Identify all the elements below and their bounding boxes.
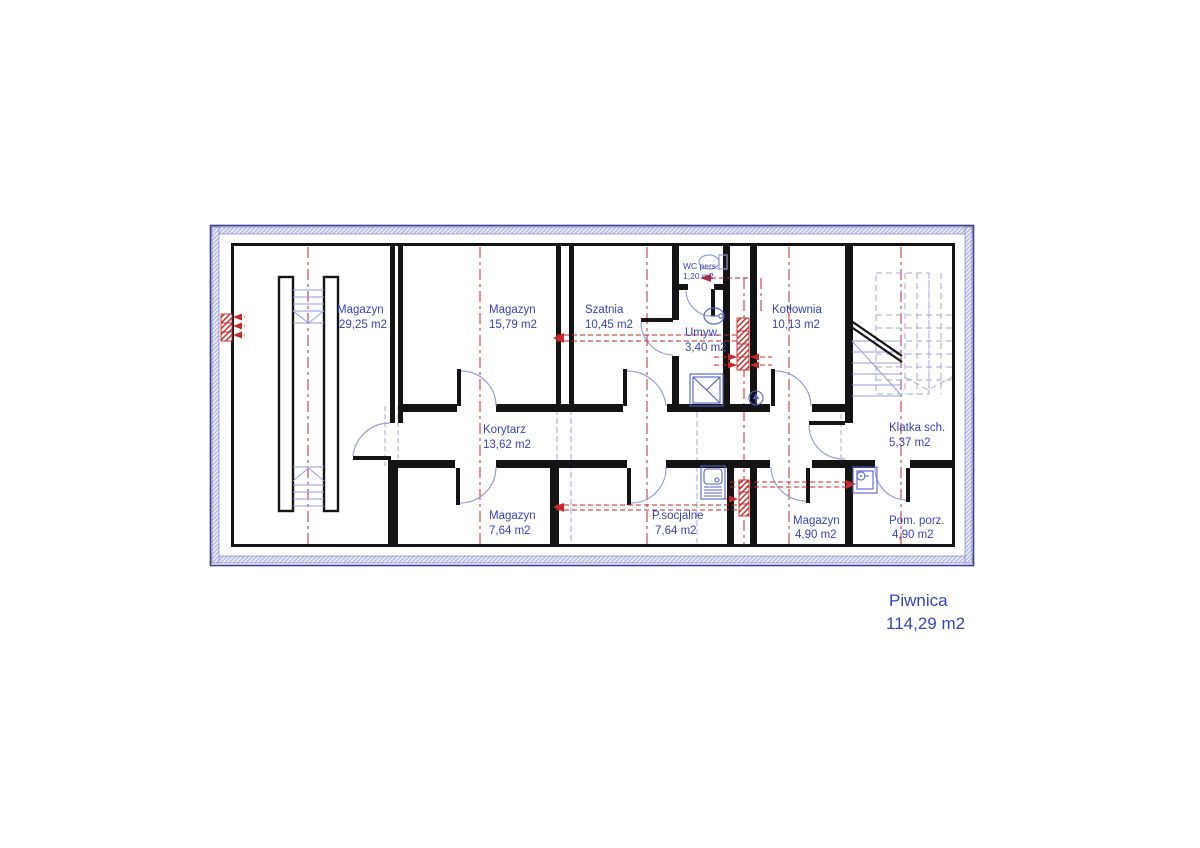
room-area: 7,64 m2 (489, 525, 531, 537)
room-name: Szatnia (585, 304, 624, 316)
room-area: 29,25 m2 (339, 319, 387, 331)
room-name: Magazyn (489, 510, 536, 522)
room-name: Korytarz (483, 424, 526, 436)
room-area: 1,20 m2 (683, 271, 714, 281)
room-name: Kotłownia (772, 304, 822, 316)
drawing-title: Piwnica 114,29 m2 (886, 591, 965, 633)
floor-plan-page: { "plan": { "drawing_title": "Piwnica", … (0, 0, 1200, 848)
room-name: Magazyn (337, 304, 384, 316)
room-area: 13,62 m2 (483, 439, 531, 451)
room-area: 10,45 m2 (585, 319, 633, 331)
room-label-wc-pers: WC pers. 1,20 m2 (683, 261, 718, 281)
room-name: Magazyn (489, 304, 536, 316)
room-area: 4,90 m2 (795, 529, 837, 541)
room-area: 5,37 m2 (889, 437, 931, 449)
room-area: 4,90 m2 (892, 529, 934, 541)
room-name: Magazyn (793, 515, 840, 527)
title-area: 114,29 m2 (886, 614, 965, 633)
floor-plan-drawing: Magazyn 29,25 m2 Magazyn 15,79 m2 Szatni… (0, 0, 1200, 848)
room-name: WC pers. (683, 261, 718, 271)
room-name: Pom. porz. (889, 515, 945, 527)
room-name: P.socjalne (652, 510, 704, 522)
room-area: 7,64 m2 (655, 525, 697, 537)
room-name: Umyw. (685, 327, 720, 339)
title-name: Piwnica (889, 591, 948, 610)
room-name: Klatka sch. (889, 422, 945, 434)
room-area: 15,79 m2 (489, 319, 537, 331)
room-area: 3,40 m2 (685, 342, 727, 354)
room-area: 10,13 m2 (772, 319, 820, 331)
